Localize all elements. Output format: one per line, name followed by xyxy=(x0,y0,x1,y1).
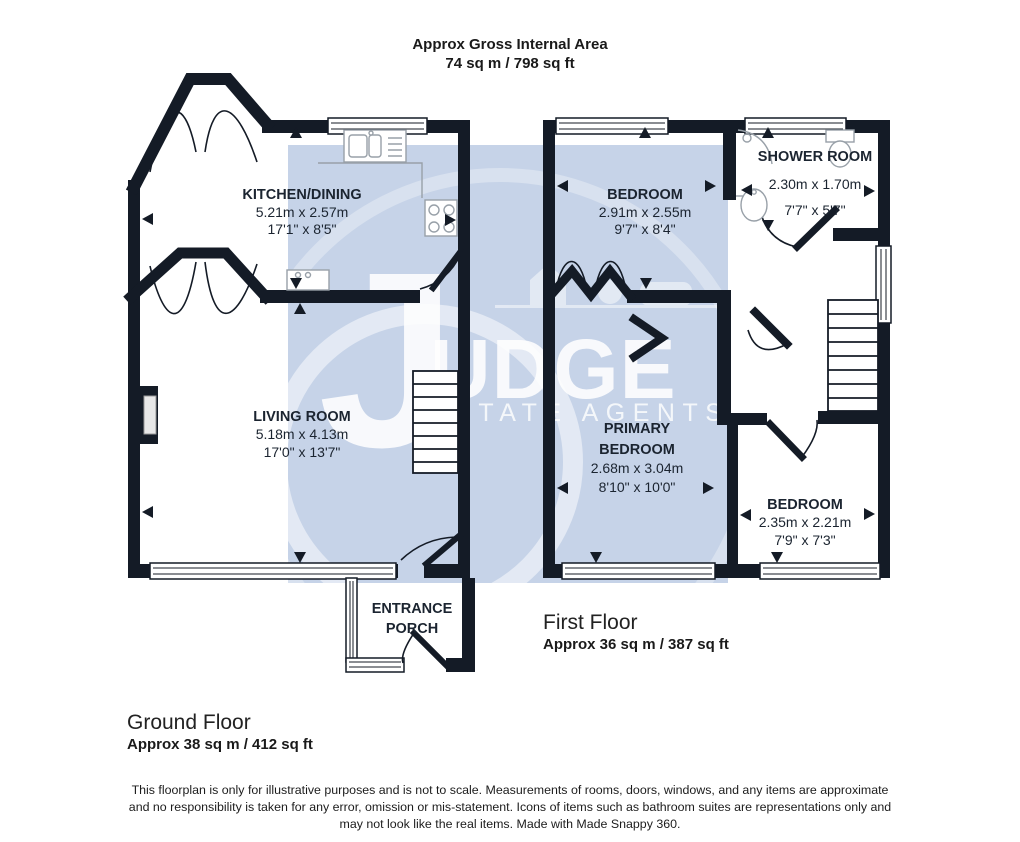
watermark-tagline: ESTATE AGENTS xyxy=(430,399,729,427)
bedroom2-door xyxy=(770,420,817,457)
svg-text:5.21m x 2.57m: 5.21m x 2.57m xyxy=(256,204,349,220)
svg-text:7'9" x 7'3": 7'9" x 7'3" xyxy=(774,532,835,548)
first-floor-title: First Floor xyxy=(543,611,638,634)
porch-side-window xyxy=(346,578,357,662)
svg-text:PRIMARY: PRIMARY xyxy=(604,421,671,437)
header: Approx Gross Internal Area 74 sq m / 798… xyxy=(412,36,608,72)
svg-text:2.91m x 2.55m: 2.91m x 2.55m xyxy=(599,204,692,220)
ground-floor-title: Ground Floor xyxy=(127,711,251,734)
living-room-window xyxy=(150,563,396,579)
disclaimer: This floorplan is only for illustrative … xyxy=(129,783,891,831)
svg-text:17'1" x 8'5": 17'1" x 8'5" xyxy=(268,221,337,237)
ground-floor-area: Approx 38 sq m / 412 sq ft xyxy=(127,736,313,753)
first-floor-area: Approx 36 sq m / 387 sq ft xyxy=(543,636,729,653)
kitchen-sink xyxy=(344,130,406,162)
disclaimer-line-1: This floorplan is only for illustrative … xyxy=(132,783,889,797)
svg-text:9'7" x 8'4": 9'7" x 8'4" xyxy=(614,221,675,237)
svg-text:PORCH: PORCH xyxy=(386,621,438,637)
fireplace xyxy=(128,386,158,444)
porch-front-door xyxy=(402,633,446,665)
landing-door xyxy=(748,312,787,350)
disclaimer-line-3: may not look like the real items. Made w… xyxy=(340,817,681,831)
svg-text:5.18m x 4.13m: 5.18m x 4.13m xyxy=(256,426,349,442)
svg-text:BEDROOM: BEDROOM xyxy=(607,187,683,203)
bedroom2-window xyxy=(760,563,880,579)
svg-text:ENTRANCE: ENTRANCE xyxy=(372,601,453,617)
first-stairs xyxy=(828,300,878,411)
svg-text:SHOWER ROOM: SHOWER ROOM xyxy=(758,149,872,165)
svg-text:2.35m x 2.21m: 2.35m x 2.21m xyxy=(759,514,852,530)
svg-text:BEDROOM: BEDROOM xyxy=(767,497,843,513)
ground-stairs xyxy=(413,371,458,473)
svg-text:2.30m x 1.70m: 2.30m x 1.70m xyxy=(769,176,862,192)
svg-text:KITCHEN/DINING: KITCHEN/DINING xyxy=(242,187,361,203)
bedroom1-window xyxy=(556,118,668,134)
floorplan-svg: J UDGE ESTATE AGENTS Approx Gross Intern… xyxy=(0,0,1020,842)
svg-text:7'7" x 5'7": 7'7" x 5'7" xyxy=(784,202,845,218)
room-label-shower: SHOWER ROOM 2.30m x 1.70m 7'7" x 5'7" xyxy=(758,149,872,218)
gross-area-title: Approx Gross Internal Area xyxy=(412,36,608,53)
svg-text:BEDROOM: BEDROOM xyxy=(599,442,675,458)
room-label-porch: ENTRANCE PORCH xyxy=(372,601,453,637)
room-label-bedroom2: BEDROOM 2.35m x 2.21m 7'9" x 7'3" xyxy=(759,497,852,548)
gross-area-value: 74 sq m / 798 sq ft xyxy=(445,55,574,72)
disclaimer-line-2: and no responsibility is taken for any e… xyxy=(129,800,891,814)
primary-window xyxy=(562,563,715,579)
svg-text:8'10" x 10'0": 8'10" x 10'0" xyxy=(599,479,676,495)
svg-text:2.68m x 3.04m: 2.68m x 3.04m xyxy=(591,460,684,476)
porch-front-window xyxy=(346,658,404,672)
room-label-living: LIVING ROOM 5.18m x 4.13m 17'0" x 13'7" xyxy=(253,409,350,460)
svg-text:LIVING ROOM: LIVING ROOM xyxy=(253,409,350,425)
svg-text:17'0" x 13'7": 17'0" x 13'7" xyxy=(264,444,341,460)
floorplan-page: J UDGE ESTATE AGENTS Approx Gross Intern… xyxy=(0,0,1020,842)
